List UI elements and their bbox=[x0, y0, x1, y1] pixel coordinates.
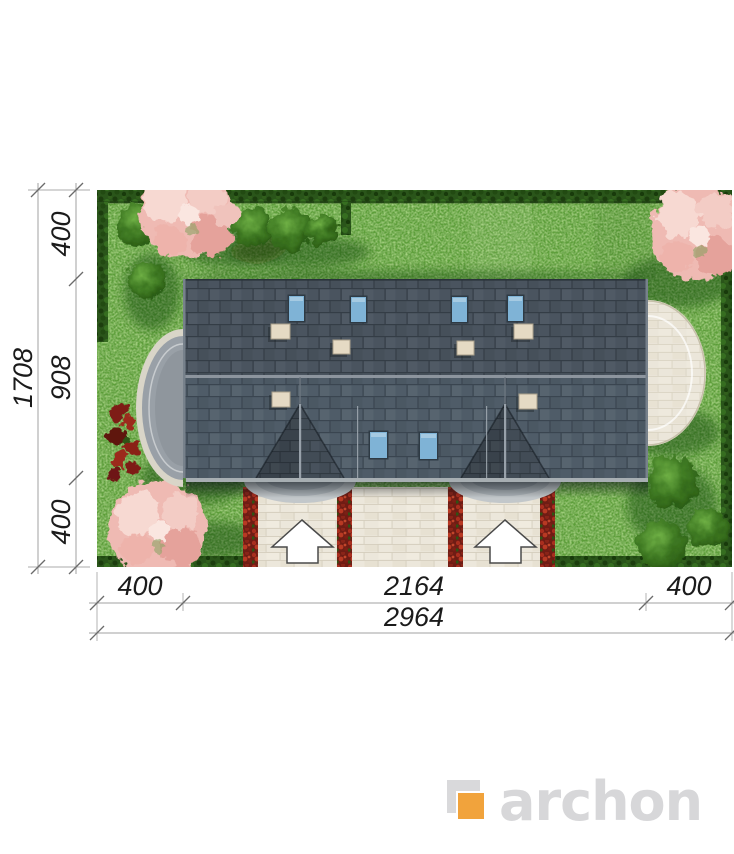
roof-back-slope bbox=[183, 279, 648, 377]
chimney bbox=[330, 340, 350, 357]
chimney bbox=[516, 394, 537, 412]
flower-strip bbox=[448, 487, 463, 567]
roof bbox=[183, 279, 648, 478]
roof-window bbox=[451, 296, 469, 324]
eave-shadow bbox=[186, 482, 648, 498]
site-plan-drawing: 400 2164 400 2964 400 908 400 1708 bbox=[0, 0, 734, 854]
archon-logo: archon bbox=[447, 780, 702, 836]
dim-left-total: 1708 bbox=[8, 348, 38, 408]
house bbox=[136, 279, 706, 503]
blossom-tree bbox=[139, 166, 240, 258]
roof-front-slope bbox=[183, 377, 648, 478]
chimney bbox=[511, 324, 533, 342]
roof-window bbox=[419, 432, 439, 461]
roof-window bbox=[288, 295, 306, 323]
roof-window bbox=[369, 431, 389, 460]
walkway-center bbox=[352, 487, 448, 567]
chimney bbox=[454, 341, 474, 358]
flower-strip bbox=[243, 487, 258, 567]
roof-ridge bbox=[183, 375, 648, 378]
dim-left-top: 400 bbox=[46, 211, 76, 256]
dim-bottom-total: 2964 bbox=[383, 602, 444, 632]
site-plan-page: 400 2164 400 2964 400 908 400 1708 archo… bbox=[0, 0, 734, 854]
dim-left-middle: 908 bbox=[46, 355, 76, 400]
roof-window bbox=[350, 296, 368, 324]
archon-logo-mark bbox=[447, 780, 489, 836]
dim-bottom-center: 2164 bbox=[383, 571, 444, 601]
logo-orange-square bbox=[456, 791, 486, 821]
chimney bbox=[268, 324, 290, 342]
archon-logo-text: archon bbox=[499, 775, 702, 829]
lawn-stripe bbox=[470, 203, 532, 278]
dim-bottom-left: 400 bbox=[117, 571, 162, 601]
roof-window bbox=[507, 295, 525, 323]
dim-bottom-right: 400 bbox=[666, 571, 711, 601]
flower-strip bbox=[540, 487, 555, 567]
flower-strip bbox=[337, 487, 352, 567]
eave-fascia bbox=[186, 478, 648, 482]
dim-left-bottom: 400 bbox=[46, 499, 76, 544]
chimney bbox=[269, 392, 290, 410]
